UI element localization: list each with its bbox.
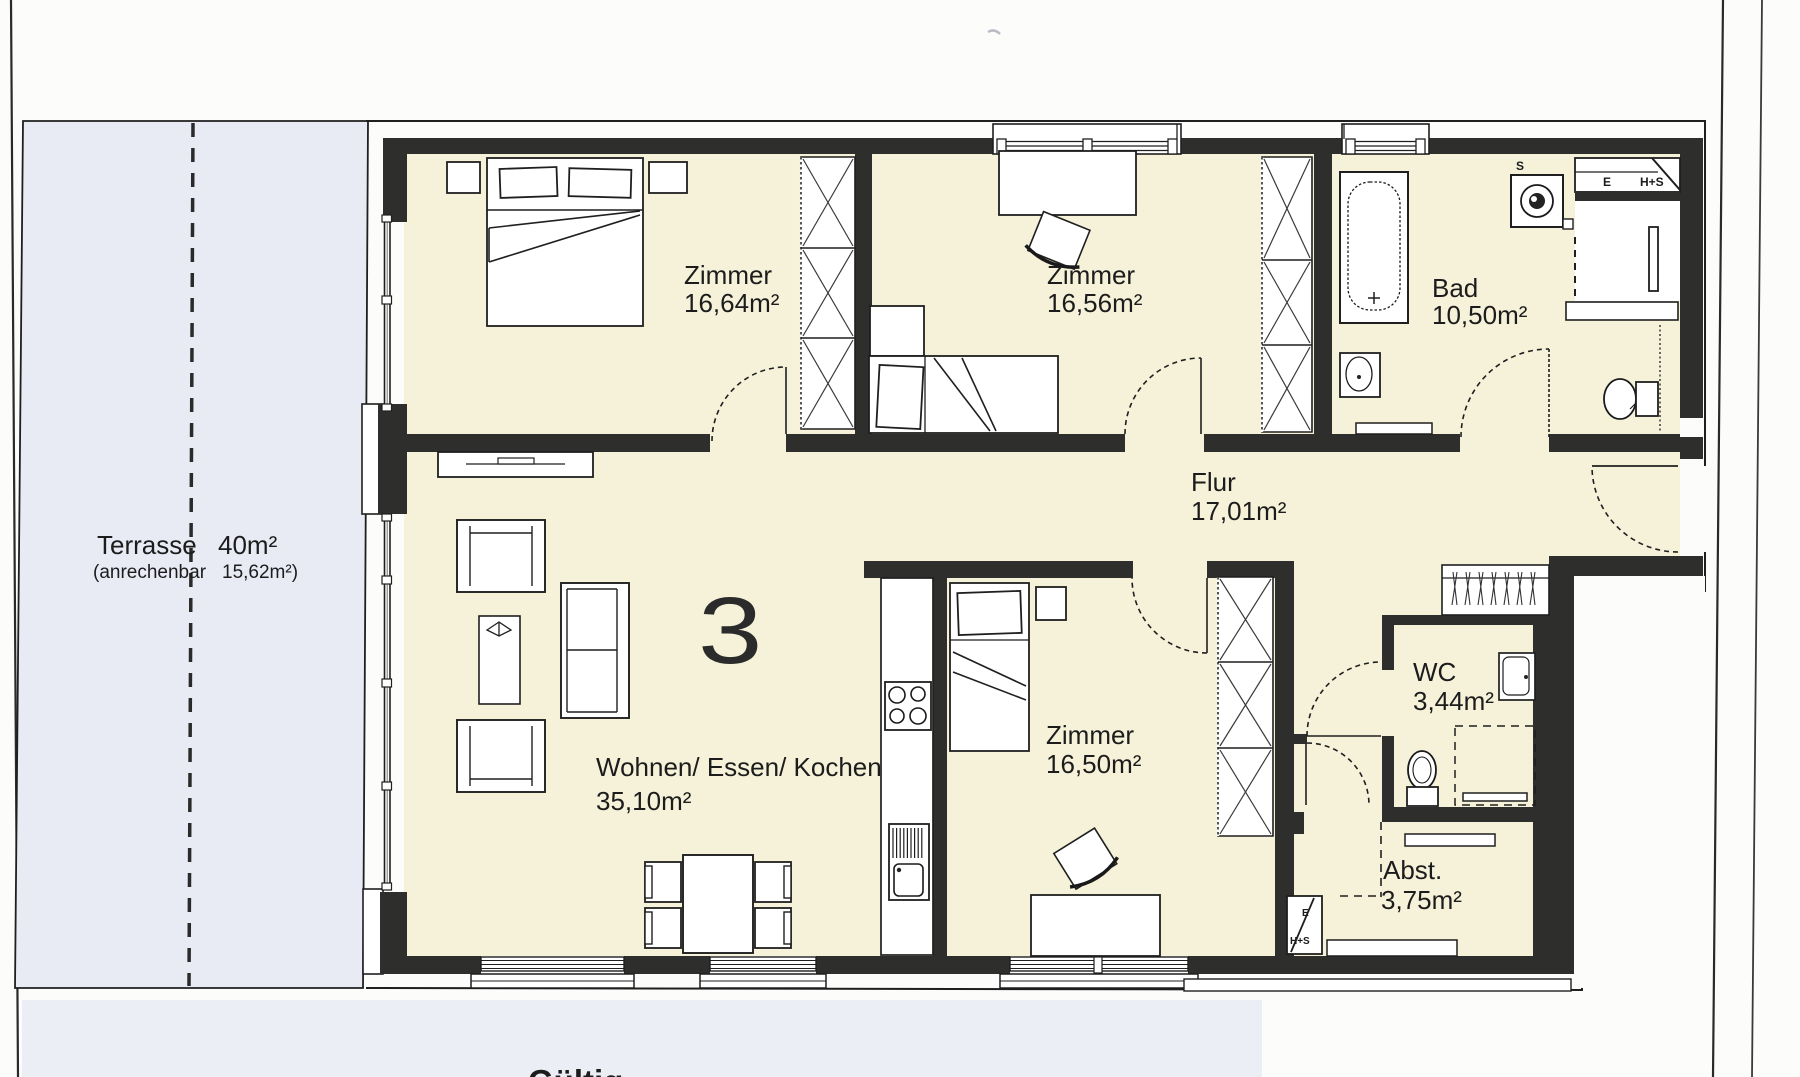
svg-text:16,50m²: 16,50m²	[1046, 749, 1142, 779]
svg-text:(anrechenbar: (anrechenbar	[93, 562, 207, 583]
svg-text:3,75m²: 3,75m²	[1381, 885, 1462, 915]
svg-text:16,64m²: 16,64m²	[684, 288, 780, 318]
svg-text:Zimmer: Zimmer	[1046, 720, 1134, 750]
svg-text:WC: WC	[1413, 657, 1456, 687]
svg-text:Wohnen/ Essen/ Kochen: Wohnen/ Essen/ Kochen	[596, 752, 882, 782]
svg-text:Abst.: Abst.	[1383, 855, 1442, 885]
svg-text:Terrasse: Terrasse	[97, 530, 197, 560]
svg-text:35,10m²: 35,10m²	[596, 786, 692, 816]
svg-text:E: E	[1302, 908, 1309, 919]
svg-text:Flur: Flur	[1191, 467, 1236, 497]
svg-text:Zimmer: Zimmer	[684, 260, 772, 290]
svg-text:Gültig: Gültig	[528, 1063, 623, 1077]
svg-text:S: S	[1516, 159, 1524, 173]
svg-text:17,01m²: 17,01m²	[1191, 496, 1287, 526]
svg-text:16,56m²: 16,56m²	[1047, 288, 1143, 318]
svg-text:E: E	[1603, 175, 1611, 189]
svg-text:3: 3	[698, 578, 762, 684]
svg-text:40m²: 40m²	[218, 530, 278, 560]
svg-text:H+S: H+S	[1640, 175, 1664, 189]
svg-text:Bad: Bad	[1432, 273, 1478, 303]
svg-text:3,44m²: 3,44m²	[1413, 686, 1494, 716]
svg-text:H+S: H+S	[1290, 936, 1310, 947]
svg-text:Zimmer: Zimmer	[1047, 260, 1135, 290]
svg-text:10,50m²: 10,50m²	[1432, 300, 1528, 330]
svg-text:15,62m²): 15,62m²)	[222, 562, 298, 583]
